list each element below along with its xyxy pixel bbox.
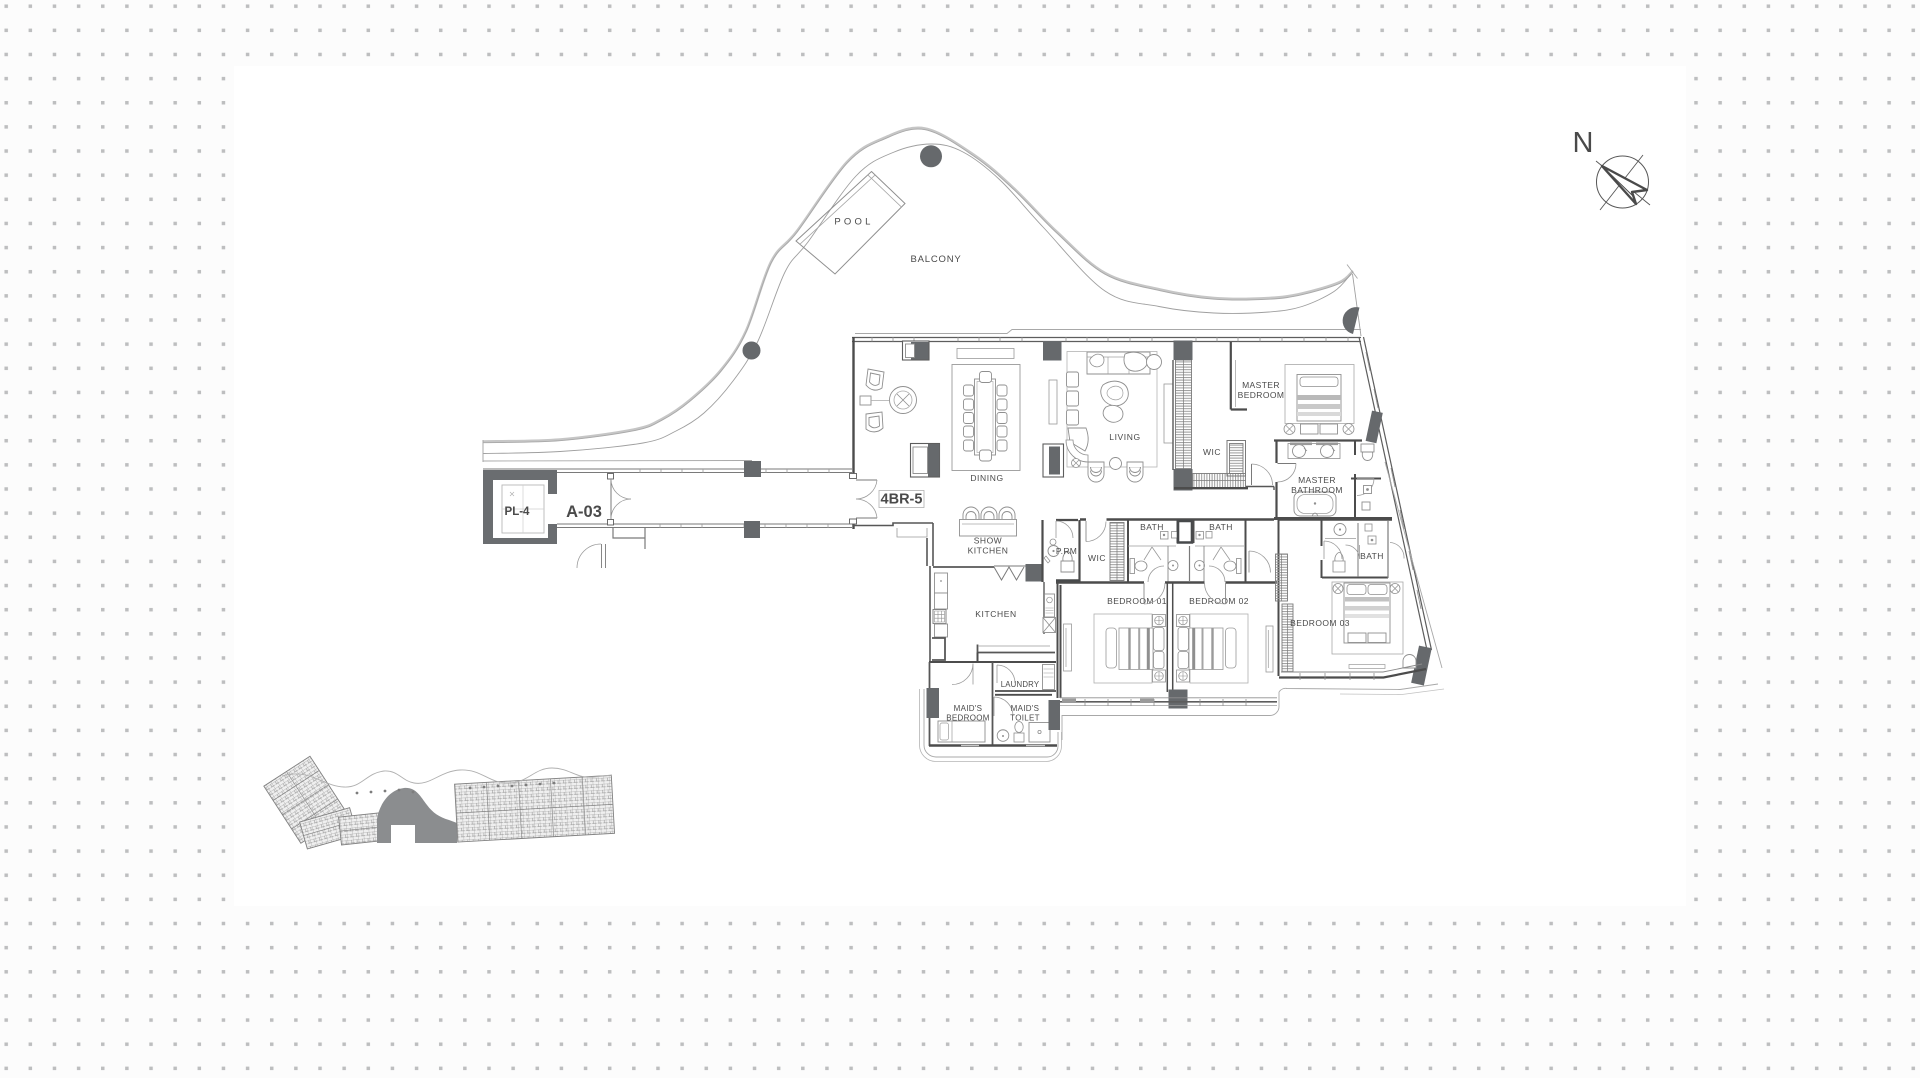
- svg-text:KITCHEN: KITCHEN: [968, 546, 1009, 556]
- svg-text:BATH: BATH: [1209, 522, 1233, 532]
- svg-text:MAID'S: MAID'S: [1011, 704, 1040, 713]
- svg-text:4BR-5: 4BR-5: [881, 492, 923, 508]
- svg-text:MASTER: MASTER: [1242, 380, 1280, 390]
- svg-text:BEDROOM: BEDROOM: [1238, 390, 1285, 400]
- svg-text:DINING: DINING: [970, 473, 1003, 483]
- svg-text:BATH: BATH: [1360, 551, 1384, 561]
- svg-text:KITCHEN: KITCHEN: [975, 609, 1017, 619]
- svg-text:MAID'S: MAID'S: [954, 704, 983, 713]
- svg-text:N: N: [1573, 127, 1594, 159]
- svg-text:LIVING: LIVING: [1109, 432, 1140, 442]
- svg-text:TOILET: TOILET: [1010, 714, 1040, 723]
- svg-text:BEDROOM 02: BEDROOM 02: [1189, 596, 1249, 606]
- svg-text:P.RM: P.RM: [1056, 546, 1077, 556]
- svg-text:BALCONY: BALCONY: [910, 254, 961, 265]
- svg-text:WIC: WIC: [1088, 553, 1106, 563]
- svg-text:BATH: BATH: [1140, 522, 1164, 532]
- svg-text:WIC: WIC: [1203, 447, 1221, 457]
- svg-text:BATHROOM: BATHROOM: [1291, 485, 1343, 495]
- svg-text:POOL: POOL: [834, 217, 873, 228]
- svg-text:MASTER: MASTER: [1298, 475, 1336, 485]
- svg-text:PL-4: PL-4: [505, 506, 531, 518]
- svg-text:A-03: A-03: [566, 503, 602, 521]
- svg-text:SHOW: SHOW: [974, 536, 1002, 546]
- svg-text:LAUNDRY: LAUNDRY: [1001, 680, 1040, 689]
- svg-text:BEDROOM 01: BEDROOM 01: [1107, 596, 1167, 606]
- svg-text:BEDROOM 03: BEDROOM 03: [1290, 618, 1350, 628]
